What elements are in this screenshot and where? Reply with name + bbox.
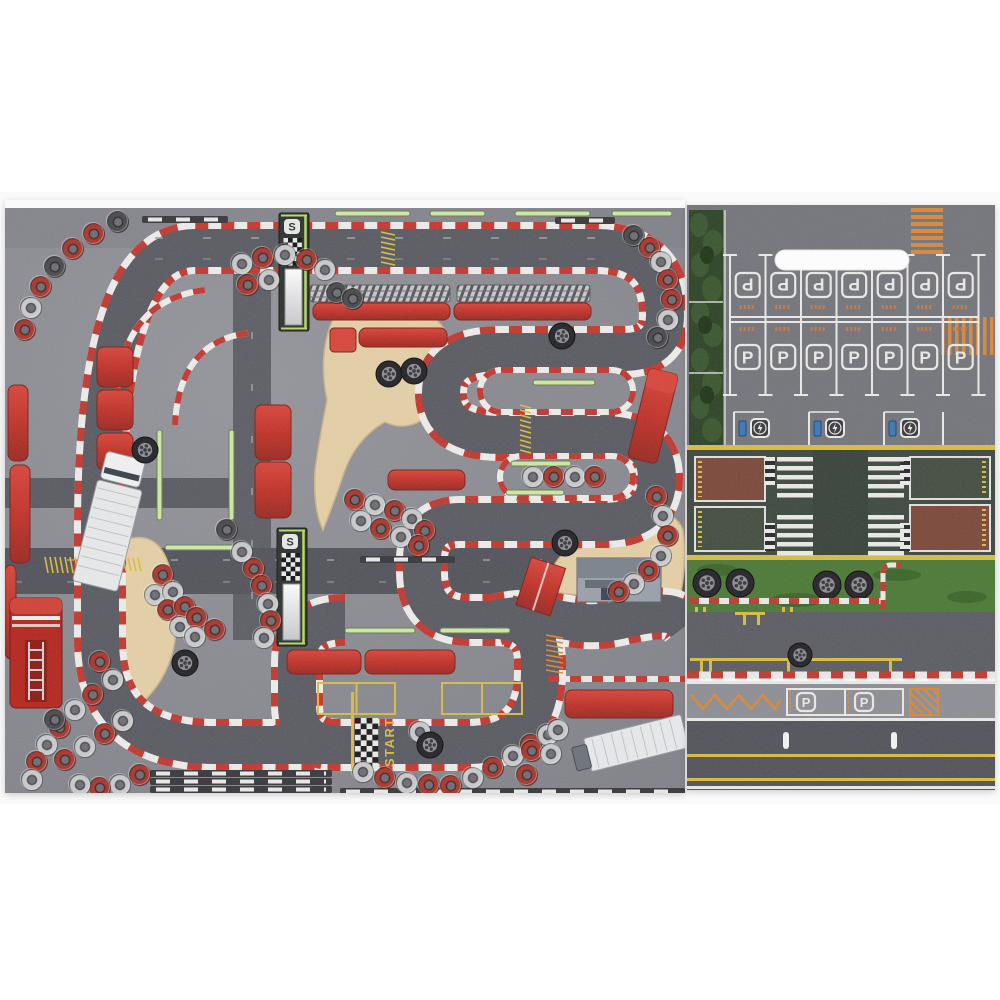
- race-track-mat: START: [5, 200, 685, 793]
- asphalt-texture: [687, 205, 995, 790]
- parking-street-mat: PPPPPPPPPPPPPP: [687, 205, 995, 790]
- asphalt-texture: [5, 208, 685, 793]
- product-photo: { "labels": { "start": "START", "parking…: [0, 0, 1000, 1000]
- parking-scene: PPPPPPPPPPPPPP: [687, 205, 995, 790]
- race-track-scene: START: [5, 200, 685, 793]
